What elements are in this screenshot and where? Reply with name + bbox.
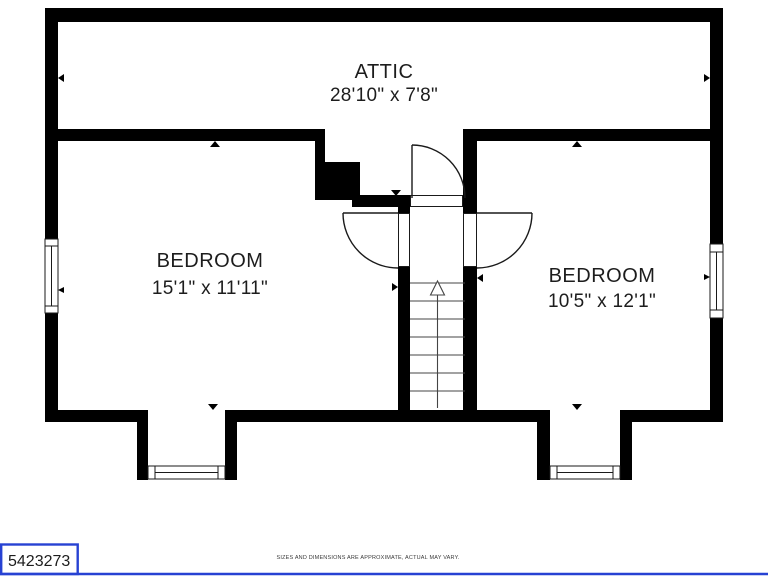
room-dims-right-bedroom: 10'5" x 12'1"	[548, 291, 656, 312]
wall-segment	[45, 129, 325, 141]
door-swing-attic	[412, 145, 465, 198]
room-label-left-bedroom: BEDROOM	[157, 250, 264, 272]
window	[710, 244, 723, 318]
footer-overlay: 5423273 SIZES AND DIMENSIONS ARE APPROXI…	[0, 545, 768, 575]
wall-segment	[710, 318, 723, 422]
wall-marker	[58, 287, 64, 293]
door-threshold	[411, 196, 463, 207]
wall-segment	[45, 8, 723, 22]
dormer-wall	[137, 410, 148, 480]
door-threshold	[399, 214, 410, 267]
wall-segment	[463, 141, 477, 213]
room-label-right-bedroom: BEDROOM	[549, 265, 656, 287]
door-swing-right-bedroom	[477, 213, 532, 268]
room-dims-left-bedroom: 15'1" x 11'11"	[152, 278, 268, 299]
disclaimer-text: SIZES AND DIMENSIONS ARE APPROXIMATE, AC…	[277, 555, 460, 561]
wall-segment	[463, 129, 723, 141]
wall-segment	[620, 410, 723, 422]
wall-segment	[45, 313, 58, 422]
chimney-block	[315, 162, 360, 200]
wall-marker	[210, 141, 220, 147]
room-dims-attic: 28'10" x 7'8"	[330, 85, 438, 106]
door-threshold	[464, 214, 477, 267]
wall-marker	[572, 141, 582, 147]
dormer-wall	[225, 410, 237, 480]
wall-segment	[225, 410, 550, 422]
floor-plan-drawing: ATTIC 28'10" x 7'8" BEDROOM 15'1" x 11'1…	[0, 0, 768, 576]
wall-segment	[352, 195, 410, 207]
wall-marker	[704, 74, 710, 82]
wall-segment	[463, 267, 477, 410]
wall-marker	[392, 283, 398, 291]
wall-marker	[704, 274, 710, 280]
wall-segment	[398, 267, 410, 410]
wall-marker	[477, 274, 483, 282]
listing-id: 5423273	[8, 553, 70, 570]
wall-segment	[398, 207, 410, 213]
wall-marker	[572, 404, 582, 410]
dormer-wall	[620, 410, 632, 480]
floor-plan-canvas: ATTIC 28'10" x 7'8" BEDROOM 15'1" x 11'1…	[0, 0, 768, 576]
wall-marker	[58, 74, 64, 82]
door-swing-left-bedroom	[343, 213, 398, 268]
window	[550, 466, 620, 479]
staircase	[410, 281, 465, 408]
window	[148, 466, 225, 479]
wall-segment	[45, 410, 148, 422]
window	[45, 239, 58, 313]
wall-segment	[45, 8, 58, 239]
wall-segment	[710, 8, 723, 244]
wall-markers	[58, 74, 710, 410]
room-label-attic: ATTIC	[355, 61, 414, 83]
wall-marker	[208, 404, 218, 410]
dormer-wall	[537, 410, 550, 480]
